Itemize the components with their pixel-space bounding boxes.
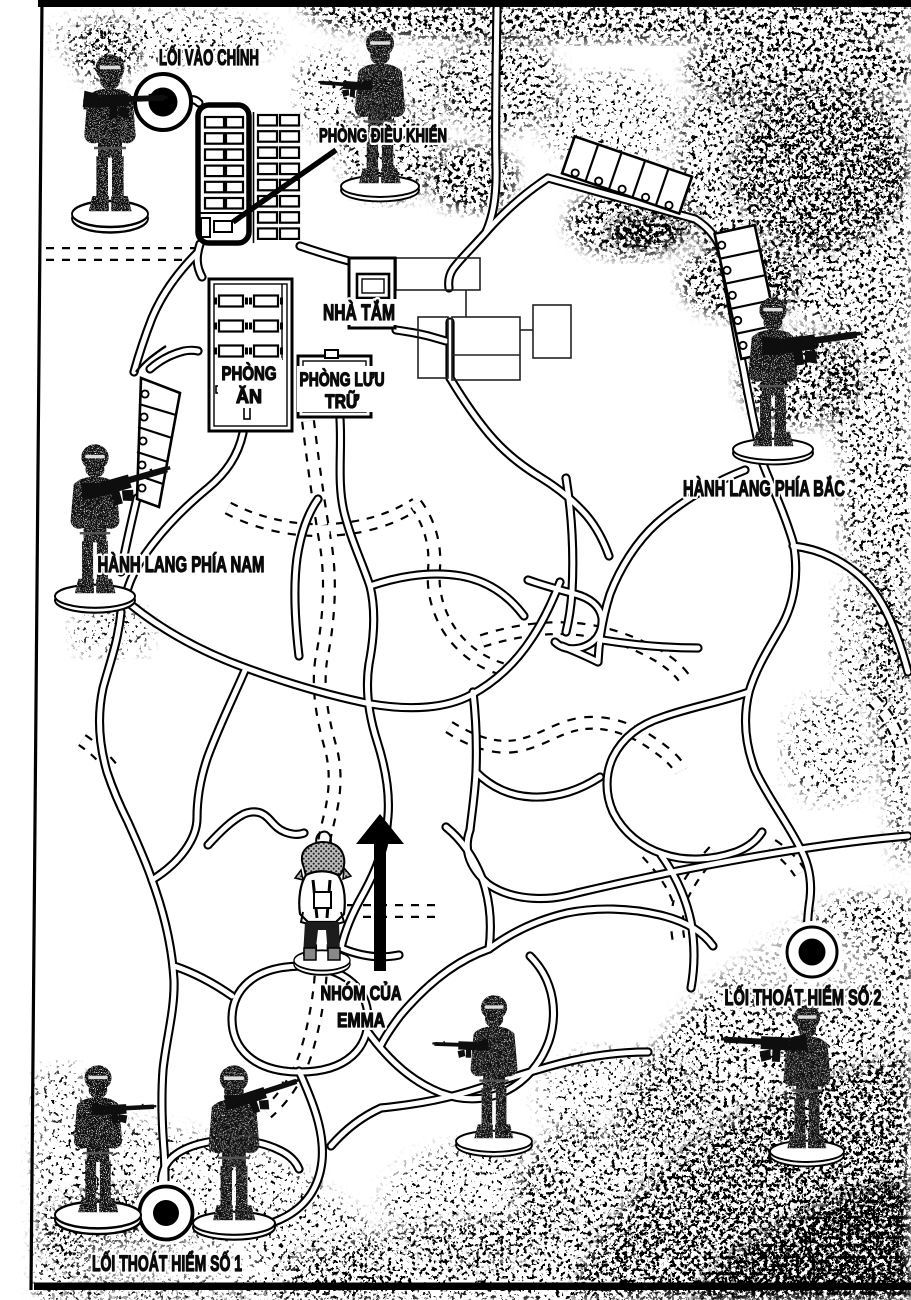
svg-text:EMMA: EMMA [337,1010,385,1032]
svg-text:LỐI VÀO CHÍNH: LỐI VÀO CHÍNH [159,44,259,70]
svg-text:NHÀ TẮM: NHÀ TẮM [323,300,395,325]
svg-text:HÀNH LANG PHÍA NAM: HÀNH LANG PHÍA NAM [98,552,265,577]
svg-text:LỐI THOÁT HIỂM SỐ 2: LỐI THOÁT HIỂM SỐ 2 [725,984,882,1010]
svg-text:NHÓM CỦA: NHÓM CỦA [321,981,402,1005]
svg-text:HÀNH LANG PHÍA BẮC: HÀNH LANG PHÍA BẮC [683,476,845,501]
svg-text:TRỮ: TRỮ [325,391,359,413]
svg-text:PHÒNG: PHÒNG [222,363,277,385]
svg-text:ĂN: ĂN [236,386,262,408]
svg-text:PHÒNG ĐIỀU KHIỂN: PHÒNG ĐIỀU KHIỂN [319,123,447,147]
svg-text:PHÒNG LƯU: PHÒNG LƯU [300,369,385,391]
svg-text:LỐI THOÁT HIỂM SỐ 1: LỐI THOÁT HIỂM SỐ 1 [92,1250,242,1276]
